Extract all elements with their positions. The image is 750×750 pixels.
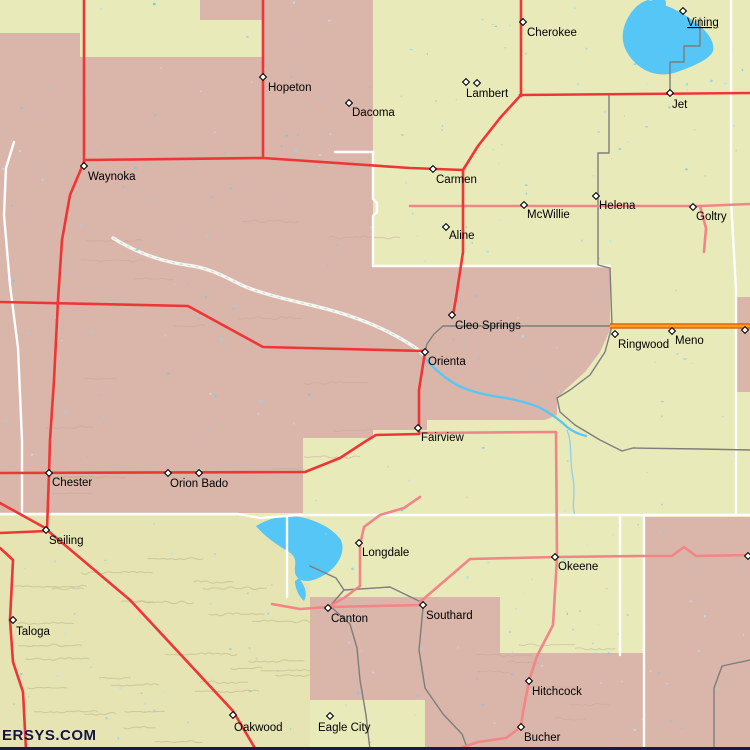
- county-region: [737, 297, 750, 392]
- town-label-taloga: Taloga: [16, 626, 50, 638]
- town-label-fairview: Fairview: [421, 432, 465, 444]
- town-label-hitchcock: Hitchcock: [532, 686, 582, 698]
- town-label-cleo-springs: Cleo Springs: [455, 320, 521, 332]
- town-label-lambert: Lambert: [466, 88, 509, 100]
- town-label-okeene: Okeene: [558, 561, 598, 573]
- town-label-mcwillie: McWillie: [527, 209, 570, 221]
- town-label-southard: Southard: [426, 610, 473, 622]
- map-canvas: CherokeeViningJetLambertHopetonDacomaWay…: [0, 0, 750, 750]
- town-label-aline: Aline: [449, 230, 475, 242]
- town-label-waynoka: Waynoka: [88, 171, 136, 183]
- town-label-longdale: Longdale: [362, 547, 409, 559]
- town-label-orion-bado: Orion Bado: [170, 478, 228, 490]
- town-label-helena: Helena: [599, 200, 636, 212]
- town-label-hopeton: Hopeton: [268, 82, 311, 94]
- town-label-meno: Meno: [675, 335, 704, 347]
- watermark: ERSYS.COM: [2, 727, 97, 744]
- town-label-seiling: Seiling: [49, 535, 84, 547]
- town-label-cherokee: Cherokee: [527, 27, 577, 39]
- town-label-eagle-city: Eagle City: [318, 722, 371, 734]
- town-label-dacoma: Dacoma: [352, 107, 395, 119]
- map-svg: CherokeeViningJetLambertHopetonDacomaWay…: [0, 0, 750, 750]
- town-label-bucher: Bucher: [524, 732, 561, 744]
- town-label-chester: Chester: [52, 477, 92, 489]
- town-label-orienta: Orienta: [428, 356, 466, 368]
- town-label-ringwood: Ringwood: [618, 339, 669, 351]
- town-label-oakwood: Oakwood: [234, 722, 283, 734]
- town-label-vining[interactable]: Vining: [687, 17, 719, 29]
- town-label-canton: Canton: [331, 613, 368, 625]
- town-label-carmen: Carmen: [436, 174, 477, 186]
- town-label-goltry: Goltry: [696, 211, 727, 223]
- county-region: [200, 0, 263, 20]
- town-label-jet: Jet: [672, 99, 688, 111]
